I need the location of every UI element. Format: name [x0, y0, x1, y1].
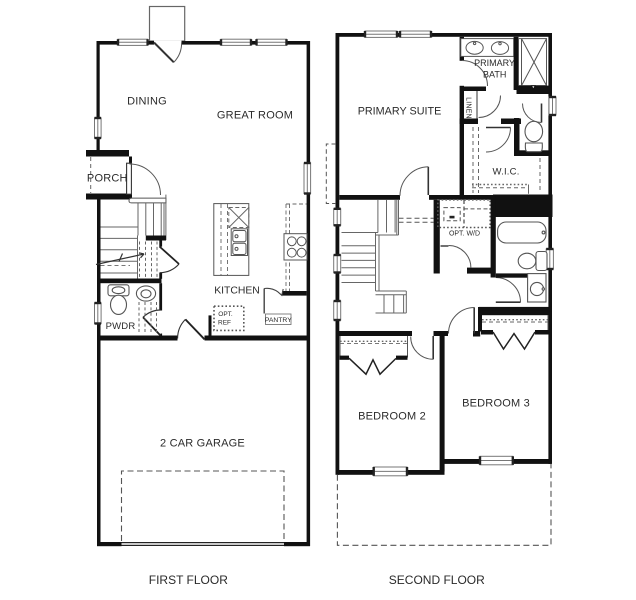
- svg-text:GREAT ROOM: GREAT ROOM: [217, 110, 293, 122]
- svg-text:PORCH: PORCH: [87, 172, 128, 184]
- svg-text:BATH: BATH: [483, 69, 506, 79]
- svg-text:BEDROOM 3: BEDROOM 3: [462, 397, 530, 409]
- svg-text:PRIMARY SUITE: PRIMARY SUITE: [358, 106, 442, 118]
- svg-text:FIRST FLOOR: FIRST FLOOR: [149, 573, 228, 587]
- svg-text:DINING: DINING: [127, 96, 167, 108]
- svg-text:PWDR: PWDR: [106, 321, 136, 332]
- svg-text:SECOND FLOOR: SECOND FLOOR: [389, 573, 485, 587]
- svg-text:OPT.: OPT.: [218, 311, 233, 318]
- svg-text:KITCHEN: KITCHEN: [214, 285, 260, 296]
- svg-text:BEDROOM 2: BEDROOM 2: [358, 410, 426, 422]
- svg-text:2 CAR GARAGE: 2 CAR GARAGE: [160, 438, 245, 450]
- svg-text:PANTRY: PANTRY: [265, 317, 292, 324]
- svg-text:OPT. W/D: OPT. W/D: [449, 230, 480, 237]
- svg-text:W.I.C.: W.I.C.: [492, 166, 519, 177]
- svg-text:LINEN: LINEN: [465, 97, 472, 119]
- svg-text:REF: REF: [218, 320, 231, 327]
- svg-text:PRIMARY: PRIMARY: [474, 58, 515, 68]
